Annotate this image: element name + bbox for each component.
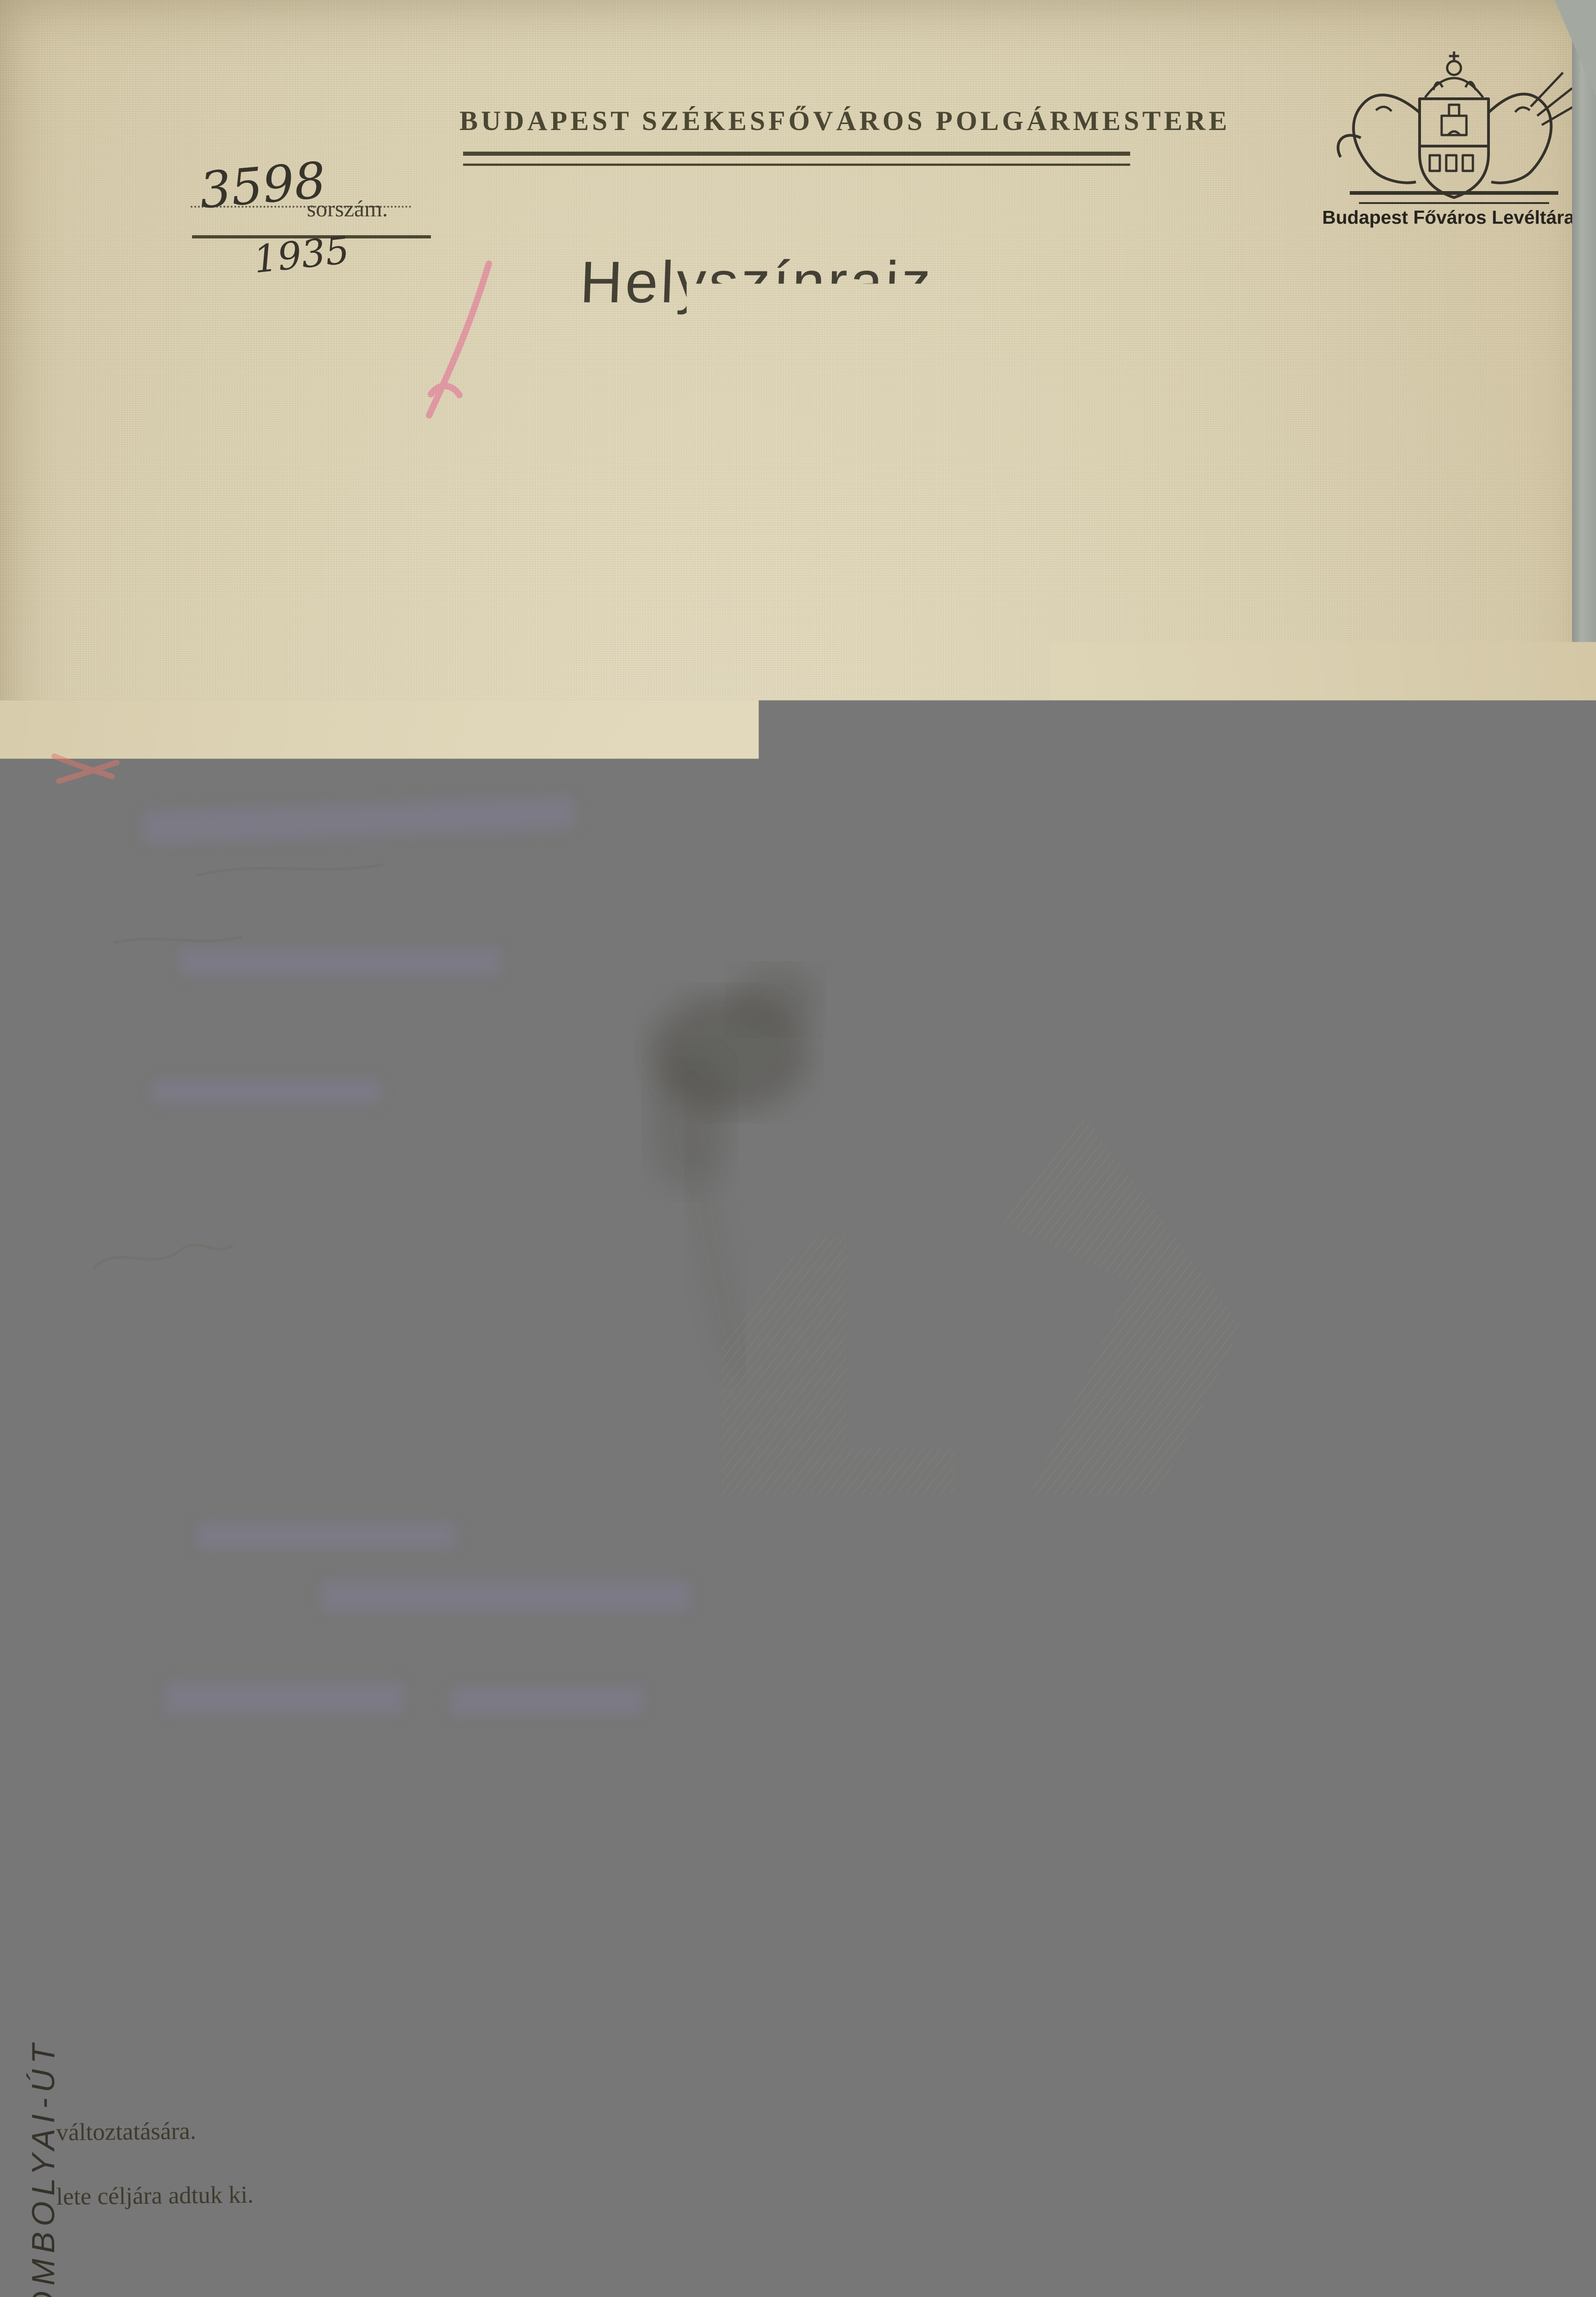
new-parcel-4491-5: 4491 5 [899,446,1013,541]
parcel-4491-6-den: 6 [257,1313,284,1358]
parcel-8-den: 8 [749,1831,772,1863]
parcel-4491-2-den: 2 [858,1347,958,1389]
section-old-label: sz. régi [317,2278,381,2297]
lenke-street-label: LENKE-ÚT [207,1597,496,1649]
clause-3b: változtatására. [56,2119,196,2146]
stamp-bleedthrough [142,796,689,1715]
parcel-4491-8-den: 8 [800,1229,844,1245]
parcel-4491-2-num: 4491 [855,1308,956,1353]
date-ho: hó [1079,2206,1104,2232]
parcel-4491-6-num: 4491 [228,1240,339,1292]
legend-heading: JELMAGYARÁZAT : [109,1814,410,1841]
legend-telekhatar: telekhatár. [232,1893,331,1918]
date-n: . n. [1188,2208,1219,2234]
parcel-4491-4-num: 4491 [652,1373,736,1411]
section-old-no: 180 [198,2268,256,2297]
archive-stamp-label: Budapest Főváros Levéltára [1322,208,1561,227]
zone-post: övezetben fekszik. [583,1950,767,1976]
parcel-4491-8-num: 4491 [800,1211,844,1229]
streets-dotted-line [475,414,1059,416]
parcel-4491-4: 4491 4 [652,1373,738,1441]
lenkeudv-line1: LENKE·UDV· [795,1452,901,1469]
parcel-4494-6: 4494 6 [596,1757,696,1838]
date-dotted-line [594,2235,1122,2237]
pink-pencil-stroke [429,264,489,415]
subtitle-tail: utcában fekvő [1071,380,1237,411]
parcel-4491-2: 4491 2 [855,1308,958,1389]
rakoczy-line1: ·RÁKÓCZY·UDV· [650,1451,790,1468]
parcel-4467-4: 4467 4 [294,567,391,645]
scale-value: 1:1440 [580,1885,682,1922]
district-dotted-line [212,414,304,416]
legend-szabalyozasi: szabályozási vonal. [672,1891,857,1916]
parcel-4467-2: 4467 2 [549,571,615,625]
date-day: 18 [1115,2191,1155,2225]
parcel-9-dots: ·· [812,1810,835,1835]
parcel-8-dots: ·· [748,1808,770,1832]
archive-coat-of-arms-icon [1338,51,1577,203]
scale-label: Lépték : [472,1898,554,1924]
parcel-4467-1: 4467 1 [822,574,925,658]
bol-handwritten: ből [811,438,854,470]
header-rule-thin [463,164,1130,166]
parcel-4491-8: 4491 8 [800,1211,844,1245]
header-rule-thick [463,152,1130,156]
lenkeudv-line2: TÁRSASHÁZ· [798,1478,910,1495]
parcel-4491-3: 4491 3 [345,1049,437,1122]
parcel-8: ·· 8 [748,1808,772,1863]
new-parcel-denominator: 5 [901,490,1013,541]
serial-label: sorszám. [307,197,388,221]
scanner-edge [1572,0,1596,2297]
document-header: BUDAPEST SZÉKESFŐVÁROS POLGÁRMESTERE [459,107,1130,136]
date-month-roman: IX [849,2173,893,2218]
hrsz-dotted-line [289,548,978,549]
rakoczy-line2: ·TÁRSASHÁZ· [653,1477,770,1494]
office-line1: A székesfőváros polgármesteri [873,2261,1286,2289]
regi-label: régi [704,464,751,496]
subtitle-a: a [195,379,208,409]
hrsz-tail: új hrsz. telekröl. [1065,462,1262,494]
section-brace: } [413,2265,451,2297]
date-month: IX [849,2178,893,2213]
zone-roman: II [463,1928,499,1975]
zone-dotted-line [404,1982,583,1984]
new-parcel-numerator: 4491 [899,446,1011,496]
date-pre: Budapest, 193 [294,2203,447,2231]
serial-year-handwritten: 1935 [252,231,351,280]
subtitle-ker: ker., [309,379,359,410]
zsombolyai-street-label: ZSOMBOLYAI-ÚT [27,2039,61,2297]
date-year-digit: 5 [532,2199,552,2231]
district-value: XI. [228,364,279,405]
clause-1: A telek szabályozási szempontból nincs r… [292,1984,779,2015]
parcel-9: ·· 9 [812,1810,837,1866]
page-title: Helyszínrajz [579,252,934,313]
zone-value: II [463,1933,499,1971]
date-evi: évi [597,2205,628,2231]
scanned-site-plan-document: BUDAPEST SZÉKESFŐVÁROS POLGÁRMESTERE 359… [0,0,1596,2297]
zone-pre: A telek a [290,1947,379,1973]
parcel-9-den: 9 [814,1833,837,1866]
clause-4b: lete céljára adtuk ki. [56,2183,254,2210]
district-handwritten: XI. [229,368,279,403]
dimension-45m: 45 m. [734,1641,809,1673]
parcel-4491-4-den: 4 [655,1405,738,1440]
